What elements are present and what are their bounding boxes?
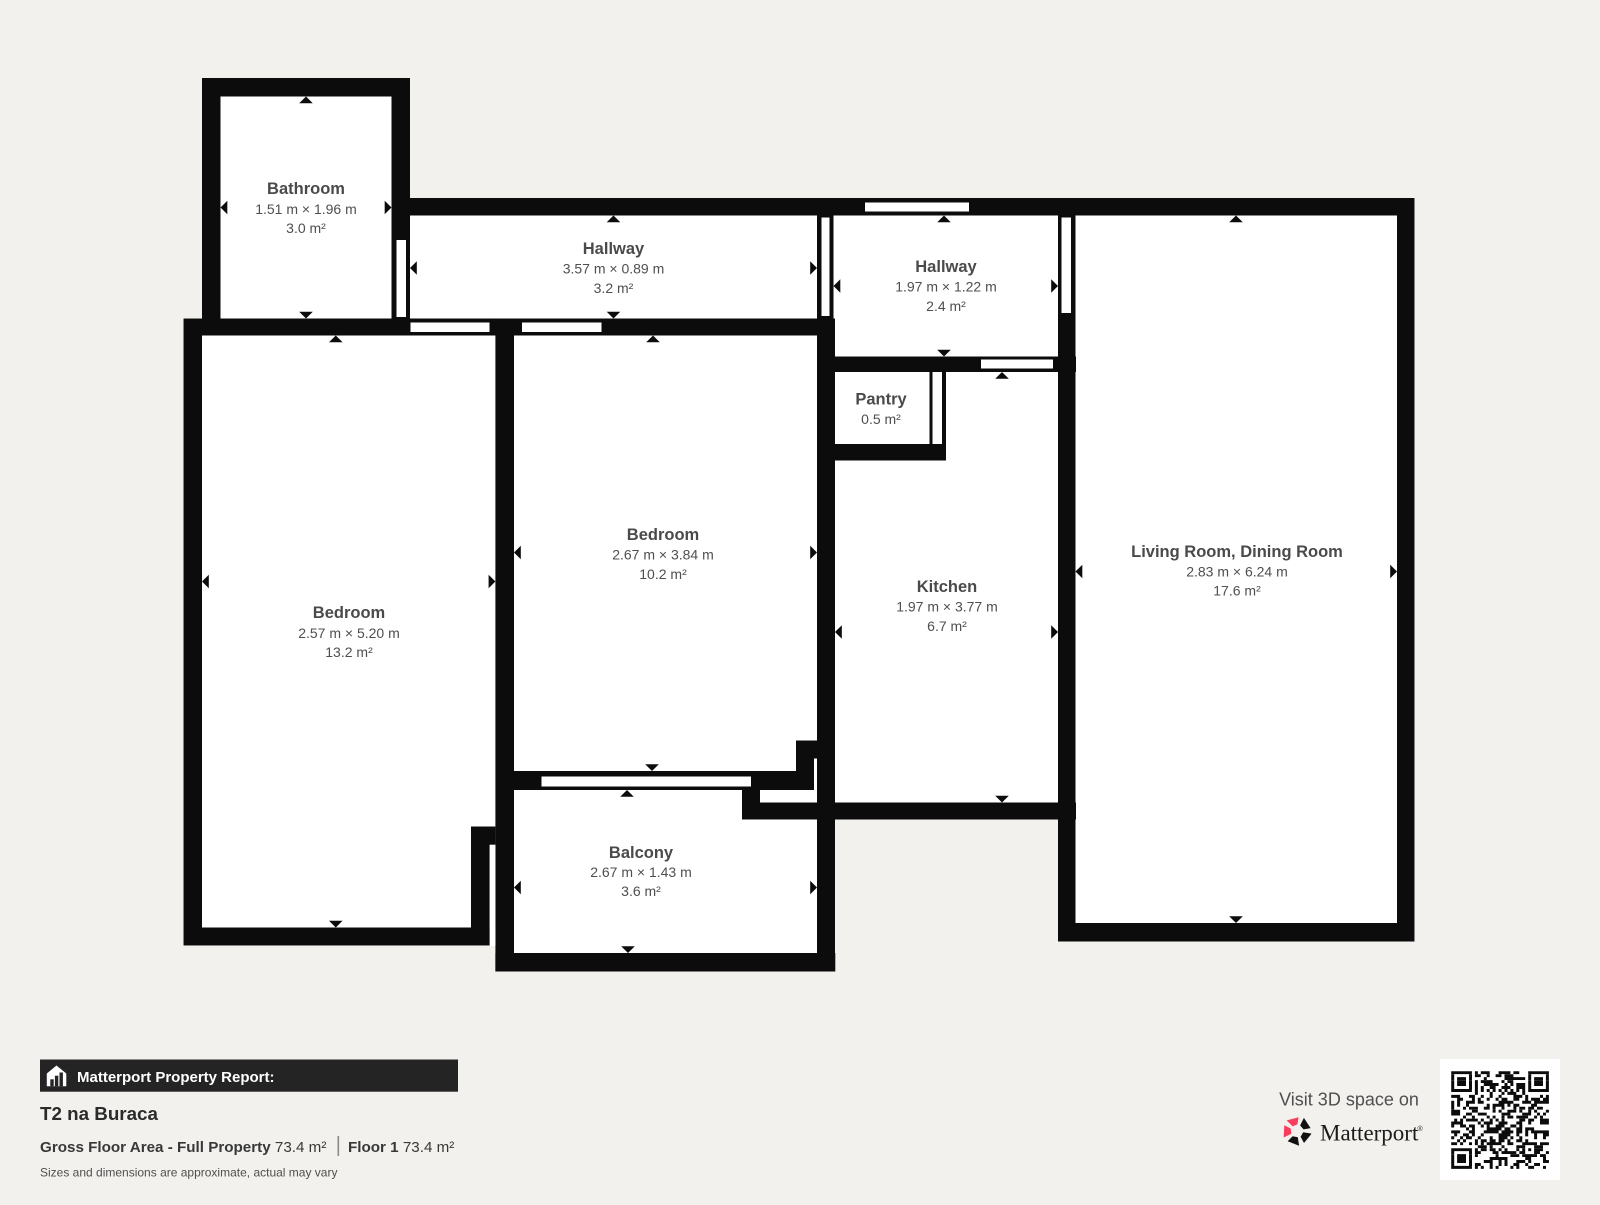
svg-text:Kitchen: Kitchen xyxy=(917,578,978,596)
svg-text:Sizes and dimensions are appro: Sizes and dimensions are approximate, ac… xyxy=(40,1166,337,1180)
svg-text:Bedroom: Bedroom xyxy=(627,526,699,544)
svg-text:Gross Floor Area - Full Proper: Gross Floor Area - Full Property 73.4 m² xyxy=(40,1139,326,1156)
svg-text:2.67 m × 3.84 m: 2.67 m × 3.84 m xyxy=(612,547,714,563)
svg-text:13.2 m²: 13.2 m² xyxy=(325,644,373,660)
svg-text:Hallway: Hallway xyxy=(915,258,977,276)
svg-text:Bedroom: Bedroom xyxy=(313,604,385,622)
svg-text:2.4 m²: 2.4 m² xyxy=(926,298,966,314)
svg-text:10.2 m²: 10.2 m² xyxy=(639,566,687,582)
svg-text:T2 na Buraca: T2 na Buraca xyxy=(40,1103,159,1124)
svg-text:17.6 m²: 17.6 m² xyxy=(1213,583,1261,599)
svg-text:3.6 m²: 3.6 m² xyxy=(621,883,661,899)
svg-text:2.67 m × 1.43 m: 2.67 m × 1.43 m xyxy=(590,864,692,880)
svg-text:3.57 m × 0.89 m: 3.57 m × 0.89 m xyxy=(563,261,665,277)
svg-text:Bathroom: Bathroom xyxy=(267,180,345,198)
svg-text:Living Room, Dining Room: Living Room, Dining Room xyxy=(1131,543,1343,561)
svg-text:Matterport Property Report:: Matterport Property Report: xyxy=(77,1069,275,1086)
svg-text:®: ® xyxy=(1418,1125,1424,1133)
svg-text:2.57 m × 5.20 m: 2.57 m × 5.20 m xyxy=(298,625,400,641)
svg-text:3.0 m²: 3.0 m² xyxy=(286,220,326,236)
svg-text:Floor 1 73.4 m²: Floor 1 73.4 m² xyxy=(348,1139,454,1156)
svg-text:1.51 m × 1.96 m: 1.51 m × 1.96 m xyxy=(255,201,357,217)
svg-text:Pantry: Pantry xyxy=(855,391,907,409)
svg-text:0.5 m²: 0.5 m² xyxy=(861,411,901,427)
svg-text:1.97 m × 1.22 m: 1.97 m × 1.22 m xyxy=(895,279,997,295)
svg-text:Hallway: Hallway xyxy=(583,240,645,258)
svg-text:Balcony: Balcony xyxy=(609,844,674,862)
svg-text:1.97 m × 3.77 m: 1.97 m × 3.77 m xyxy=(896,599,998,615)
svg-text:Matterport: Matterport xyxy=(1320,1121,1419,1146)
svg-text:Visit 3D space on: Visit 3D space on xyxy=(1279,1090,1419,1110)
svg-text:6.7 m²: 6.7 m² xyxy=(927,618,967,634)
svg-text:3.2 m²: 3.2 m² xyxy=(594,280,634,296)
svg-text:2.83 m × 6.24 m: 2.83 m × 6.24 m xyxy=(1186,564,1288,580)
